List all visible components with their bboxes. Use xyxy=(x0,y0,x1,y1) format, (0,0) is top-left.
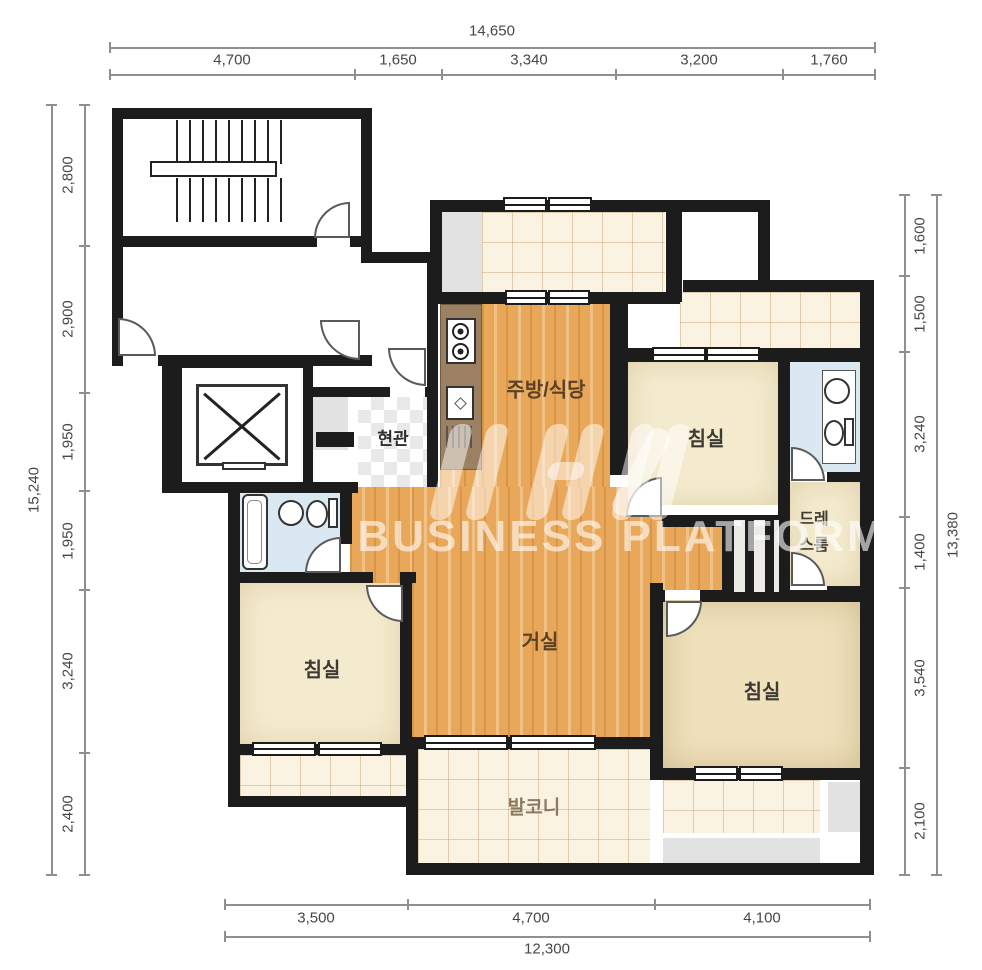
wall-segment xyxy=(400,572,416,583)
room-label-bedroom-top: 침실 xyxy=(688,423,725,452)
dim-left-seg-3: 1,950 xyxy=(60,522,77,560)
wall-segment xyxy=(406,744,418,875)
dim-top-seg-0: 4,700 xyxy=(213,52,251,69)
dim-bottom-seg-0: 3,500 xyxy=(297,910,335,927)
stair-treads-lower xyxy=(176,178,290,222)
dim-tick xyxy=(899,351,910,353)
dim-left-seg-2: 1,950 xyxy=(60,423,77,461)
window xyxy=(548,197,592,212)
elevator-car xyxy=(196,384,288,466)
burner-icon xyxy=(452,343,469,360)
toilet-left-bowl xyxy=(306,500,328,528)
dim-tick xyxy=(109,69,111,80)
dim-tick xyxy=(899,587,910,589)
wall-segment xyxy=(683,280,874,292)
window xyxy=(252,742,316,756)
dim-left-seg-5: 2,400 xyxy=(60,795,77,833)
sink-left xyxy=(278,500,304,526)
dim-tick xyxy=(782,69,784,80)
room-label-bedroom-left: 침실 xyxy=(304,654,341,683)
floor-plan: 14,650 4,700 1,650 3,340 3,200 1,760 15,… xyxy=(0,0,982,970)
dim-tick xyxy=(109,42,111,53)
bottom-right-gray-strip xyxy=(663,838,820,866)
dim-top-seg-4: 1,760 xyxy=(810,52,848,69)
wall-segment xyxy=(228,487,240,807)
room-label-living: 거실 xyxy=(522,626,559,655)
dim-tick xyxy=(899,874,910,876)
wall-segment xyxy=(406,863,874,875)
wall-segment xyxy=(610,292,628,475)
watermark-text: BUSINESS PLATFORM xyxy=(357,512,886,562)
dim-line-bottom-segments xyxy=(225,904,870,906)
top-right-balcony-floor xyxy=(680,292,860,348)
stair-landing xyxy=(150,161,277,177)
dim-tick xyxy=(79,245,90,247)
dim-left-seg-4: 3,240 xyxy=(60,652,77,690)
sink-right xyxy=(824,378,850,404)
dim-line-top-segments xyxy=(110,74,875,76)
wall-segment xyxy=(860,282,874,875)
wall-segment xyxy=(172,358,313,368)
dim-tick xyxy=(79,392,90,394)
wall-segment xyxy=(650,590,665,602)
dim-tick xyxy=(874,42,876,53)
wall-segment xyxy=(172,358,182,492)
dim-line-right-segments xyxy=(904,195,906,875)
door-vestibule xyxy=(320,320,360,360)
window xyxy=(694,766,738,781)
dim-left-total: 15,240 xyxy=(26,467,43,513)
dim-right-total: 13,380 xyxy=(945,512,962,558)
dim-line-bottom-total xyxy=(225,936,870,938)
toilet-right-tank xyxy=(844,418,854,446)
dim-left-seg-1: 2,900 xyxy=(60,300,77,338)
dim-tick xyxy=(79,874,90,876)
dim-tick xyxy=(441,69,443,80)
dim-top-seg-1: 1,650 xyxy=(379,52,417,69)
utility-balcony-floor xyxy=(482,212,665,292)
wall-segment xyxy=(340,482,352,544)
dim-tick xyxy=(224,931,226,942)
dim-tick xyxy=(869,931,871,942)
room-label-kitchen: 주방/식당 xyxy=(506,374,585,403)
dim-tick xyxy=(899,767,910,769)
window xyxy=(503,197,547,212)
elevator-door xyxy=(222,462,266,470)
dim-tick xyxy=(79,104,90,106)
dim-line-right-total xyxy=(936,195,938,875)
dim-tick xyxy=(899,194,910,196)
burner-icon xyxy=(452,323,469,340)
utility-gray-area xyxy=(441,212,482,292)
window xyxy=(424,735,508,750)
dim-tick xyxy=(899,275,910,277)
window xyxy=(510,735,596,750)
bathtub xyxy=(242,494,268,570)
stair-treads-upper xyxy=(176,120,290,164)
dim-bottom-total: 12,300 xyxy=(524,941,570,958)
wall-segment xyxy=(112,108,372,119)
dim-tick xyxy=(354,69,356,80)
window xyxy=(505,290,547,305)
dim-right-seg-2: 3,240 xyxy=(912,415,929,453)
dim-tick xyxy=(46,104,57,106)
dim-bottom-seg-1: 4,700 xyxy=(512,910,550,927)
wall-segment xyxy=(112,355,118,366)
dim-top-seg-3: 3,200 xyxy=(680,52,718,69)
door-lobby xyxy=(118,318,156,356)
dim-right-seg-5: 2,100 xyxy=(912,802,929,840)
room-label-bedroom-right: 침실 xyxy=(744,676,781,705)
wall-segment xyxy=(228,796,418,807)
window xyxy=(739,766,783,781)
wall-segment xyxy=(162,355,173,492)
wall-segment xyxy=(666,212,682,302)
wall-segment xyxy=(313,387,390,397)
window xyxy=(652,347,706,362)
room-label-balcony: 발코니 xyxy=(508,793,560,820)
dim-tick xyxy=(407,899,409,910)
wall-segment xyxy=(430,200,442,304)
wall-segment xyxy=(112,236,317,247)
dim-bottom-seg-2: 4,100 xyxy=(743,910,781,927)
dim-line-left-total xyxy=(51,105,53,875)
dim-tick xyxy=(869,899,871,910)
wall-segment xyxy=(827,586,874,598)
dim-left-seg-0: 2,800 xyxy=(60,156,77,194)
dim-tick xyxy=(654,899,656,910)
sink-drain-icon xyxy=(454,397,467,410)
wall-segment xyxy=(827,472,874,482)
wall-segment xyxy=(228,572,373,583)
wall-segment xyxy=(316,432,354,447)
dim-tick xyxy=(615,69,617,80)
room-label-entrance: 현관 xyxy=(377,425,408,450)
dim-top-total: 14,650 xyxy=(469,23,515,40)
stove xyxy=(446,318,476,364)
balcony-right-floor xyxy=(663,780,820,833)
wall-segment xyxy=(303,358,313,492)
dim-right-seg-3: 1,400 xyxy=(912,533,929,571)
dim-top-seg-2: 3,340 xyxy=(510,52,548,69)
dim-tick xyxy=(931,874,942,876)
dim-tick xyxy=(79,490,90,492)
ac-unit-area xyxy=(828,782,860,832)
wall-segment xyxy=(650,583,663,780)
kitchen-sink xyxy=(446,386,474,420)
dim-tick xyxy=(874,69,876,80)
dim-tick xyxy=(79,752,90,754)
wall-segment xyxy=(350,236,372,247)
toilet-left-tank xyxy=(328,498,338,528)
dim-tick xyxy=(46,874,57,876)
dim-tick xyxy=(224,899,226,910)
window xyxy=(318,742,382,756)
window xyxy=(706,347,760,362)
dim-tick xyxy=(79,589,90,591)
toilet-right-bowl xyxy=(824,420,844,446)
wall-segment xyxy=(430,200,770,212)
wall-segment xyxy=(758,200,770,292)
door-unit-entrance xyxy=(388,348,426,386)
wall-segment xyxy=(425,387,438,397)
dim-right-seg-4: 3,540 xyxy=(912,659,929,697)
bathtub-inner xyxy=(247,500,262,564)
dim-right-seg-0: 1,600 xyxy=(912,217,929,255)
balcony-left-floor xyxy=(240,755,406,796)
window xyxy=(548,290,590,305)
door-stairwell xyxy=(314,202,350,238)
dim-right-seg-1: 1,500 xyxy=(912,295,929,333)
wall-segment xyxy=(361,252,438,263)
dim-line-top-total xyxy=(110,47,875,49)
dim-tick xyxy=(899,516,910,518)
dim-tick xyxy=(931,194,942,196)
